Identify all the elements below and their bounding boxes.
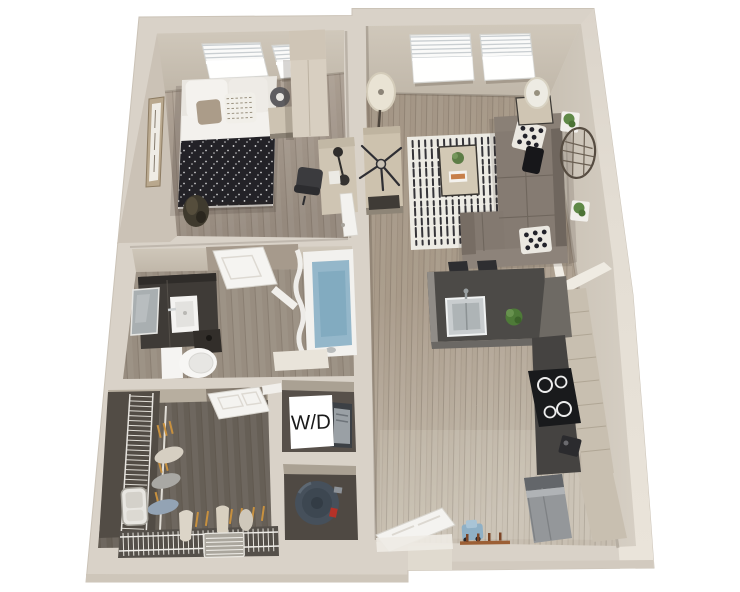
svg-text:W/D: W/D [291, 410, 332, 434]
